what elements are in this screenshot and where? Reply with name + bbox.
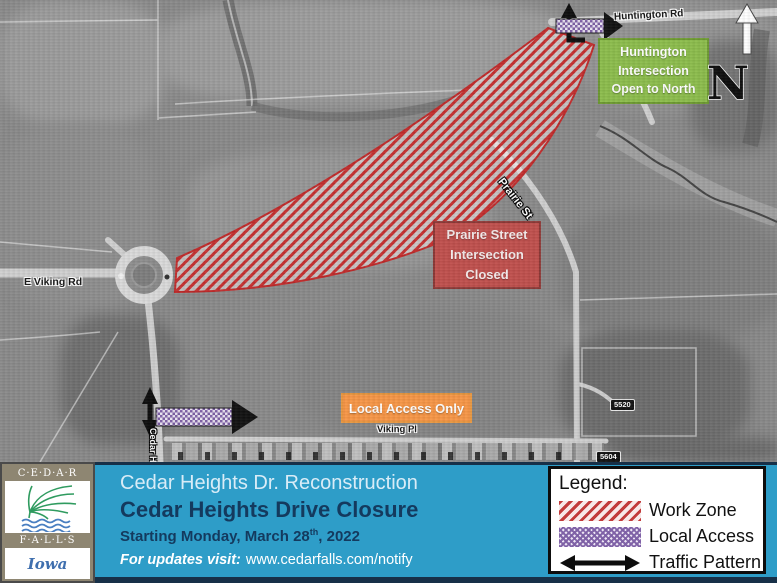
flyer: Huntington Rd E Viking Rd Viking Pl Prai…: [0, 0, 777, 583]
street-label-e-viking-rd: E Viking Rd: [24, 276, 82, 288]
north-arrow: N: [700, 2, 770, 110]
legend-label: Traffic Pattern: [649, 552, 761, 573]
legend: Legend: Work Zone Local Access Traffic P…: [548, 466, 766, 574]
street-label-cedar-hts-dr: Cedar Hts Dr: [148, 428, 158, 462]
logo-tree-art: [5, 481, 90, 533]
date-ordinal: th: [310, 527, 319, 537]
address-chip-5604: 5604: [596, 451, 621, 462]
callout-prairie-closed: Prairie Street Intersection Closed: [433, 221, 541, 289]
aerial-map: Huntington Rd E Viking Rd Viking Pl Prai…: [0, 0, 777, 462]
legend-label: Work Zone: [649, 500, 737, 521]
local-access-arrow-south: [156, 400, 258, 434]
address-markers-row: [178, 452, 580, 460]
callout-line: Intersection: [450, 245, 524, 265]
callout-line: Open to North: [611, 80, 695, 99]
legend-row-traffic-pattern: Traffic Pattern: [559, 552, 755, 573]
callout-line: Intersection: [618, 62, 689, 81]
north-letter: N: [707, 56, 749, 110]
address-chip-5520: 5520: [610, 399, 635, 411]
roundabout: [118, 251, 170, 299]
work-zone-swatch: [559, 501, 641, 521]
cedar-tree-icon: [16, 482, 80, 532]
callout-local-access-only: Local Access Only: [341, 393, 472, 423]
legend-row-work-zone: Work Zone: [559, 500, 755, 521]
cedar-falls-logo: C·E·D·A·R: [0, 462, 95, 583]
logo-word-iowa: Iowa: [5, 548, 90, 579]
legend-label: Local Access: [649, 526, 754, 547]
logo-word-cedar: C·E·D·A·R: [5, 466, 90, 481]
date-prefix: Starting Monday, March 28: [120, 528, 310, 545]
updates-label: For updates visit:: [120, 552, 241, 568]
updates-url: www.cedarfalls.com/notify: [246, 552, 413, 568]
callout-huntington-open: Huntington Intersection Open to North: [598, 38, 709, 104]
logo-word-falls: F·A·L·L·S: [5, 533, 90, 548]
date-suffix: , 2022: [318, 528, 360, 545]
traffic-pattern-swatch: [559, 553, 641, 573]
callout-line: Local Access Only: [349, 401, 464, 416]
callout-line: Closed: [465, 265, 508, 285]
street-label-viking-pl: Viking Pl: [377, 424, 417, 435]
legend-row-local-access: Local Access: [559, 526, 755, 547]
callout-line: Huntington: [620, 43, 687, 62]
local-access-swatch: [559, 527, 641, 547]
legend-heading: Legend:: [559, 473, 755, 495]
callout-line: Prairie Street: [447, 225, 528, 245]
